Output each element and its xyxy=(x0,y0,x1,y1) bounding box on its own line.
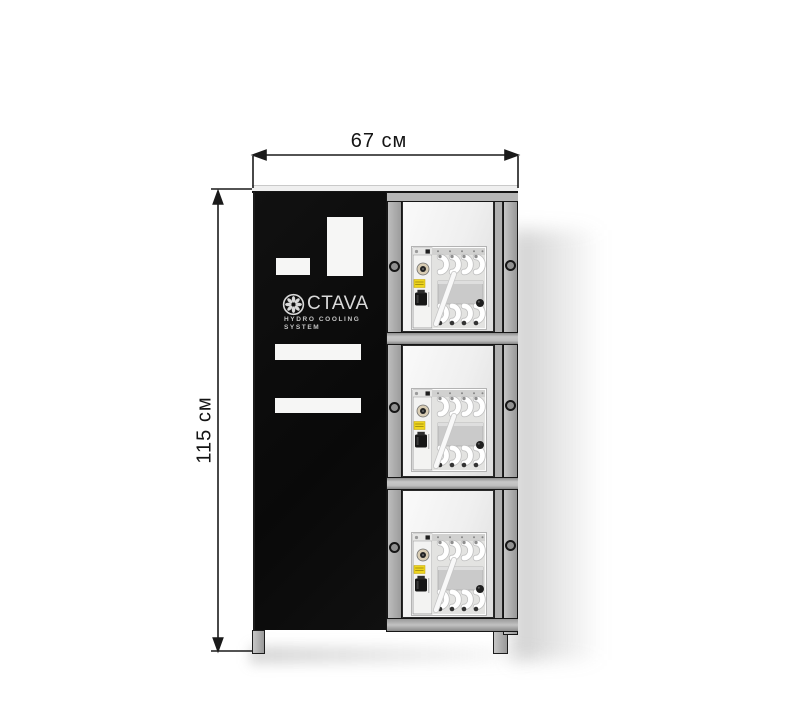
product-dimension-figure: CTAVA HYDRO COOLING SYSTEM xyxy=(0,0,807,720)
dimension-lines xyxy=(0,0,807,720)
arrowhead-right-icon xyxy=(505,150,518,159)
width-dimension-label: 67 см xyxy=(253,130,505,153)
arrowhead-up-icon xyxy=(213,191,222,204)
arrowhead-down-icon xyxy=(213,638,222,651)
